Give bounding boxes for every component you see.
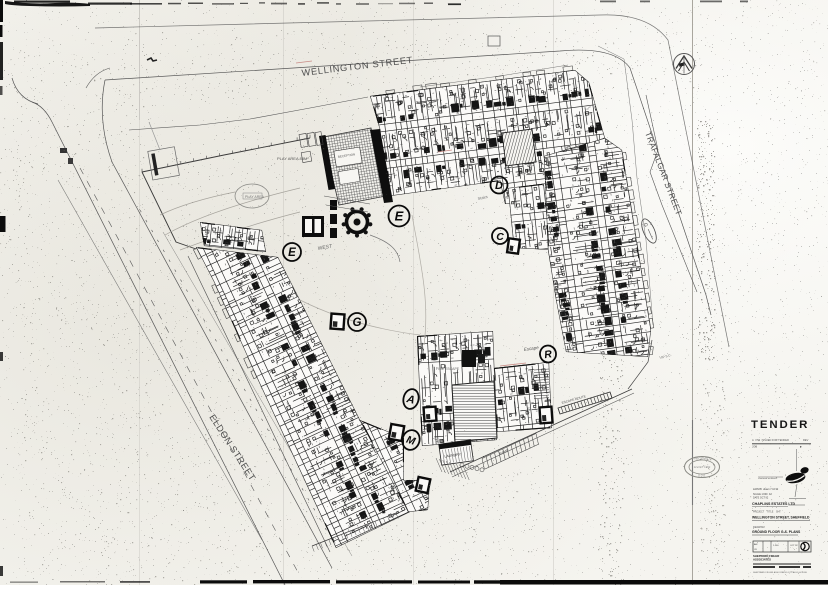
svg-text:chartered architects: chartered architects (758, 477, 778, 480)
svg-text:PROJECT TITLE SHT: PROJECT TITLE SHT (753, 511, 781, 514)
svg-text:SHEPPARD FIDLER ASSOCIATES ST: SHEPPARD FIDLER ASSOCIATES ST PAULS HOUS… (753, 571, 807, 574)
svg-text:A 7/92 ISSUED FOR TENDER: A 7/92 ISSUED FOR TENDER (752, 438, 789, 442)
svg-text:1:200: 1:200 (773, 545, 779, 547)
svg-text:PLAY AREA: PLAY AREA (245, 195, 265, 199)
svg-text:G: G (353, 317, 362, 329)
svg-text:D: D (495, 180, 503, 192)
svg-text:A2/P2/B drawn 7.10.92: A2/P2/B drawn 7.10.92 (753, 488, 779, 491)
svg-text:TENDER: TENDER (751, 419, 809, 431)
svg-text:E: E (288, 247, 296, 259)
svg-text:OCT 92: OCT 92 (790, 545, 798, 547)
svg-text:C: C (496, 231, 504, 243)
svg-text:CHAPLINS ESTATES LTD: CHAPLINS ESTATES LTD (752, 502, 796, 506)
svg-text:E: E (395, 209, 404, 224)
svg-text:PLAY AREA 88M²: PLAY AREA 88M² (277, 156, 309, 161)
svg-text:JOB: JOB (752, 445, 757, 449)
svg-text:GROUND FLOOR G.A. PLANS: GROUND FLOOR G.A. PLANS (752, 530, 801, 534)
svg-text:REV: REV (803, 438, 809, 442)
svg-text:CK: CK (754, 549, 758, 551)
svg-text:FIRE ESCAPE: FIRE ESCAPE (436, 367, 460, 371)
svg-text:DATE OCT 92: DATE OCT 92 (753, 497, 769, 500)
svg-text:DRAWING: DRAWING (753, 526, 765, 529)
svg-text:D.O.E.: D.O.E. (698, 474, 706, 478)
svg-text:WELLINGTON STREET, SHEFFIELD: WELLINGTON STREET, SHEFFIELD (752, 516, 810, 520)
